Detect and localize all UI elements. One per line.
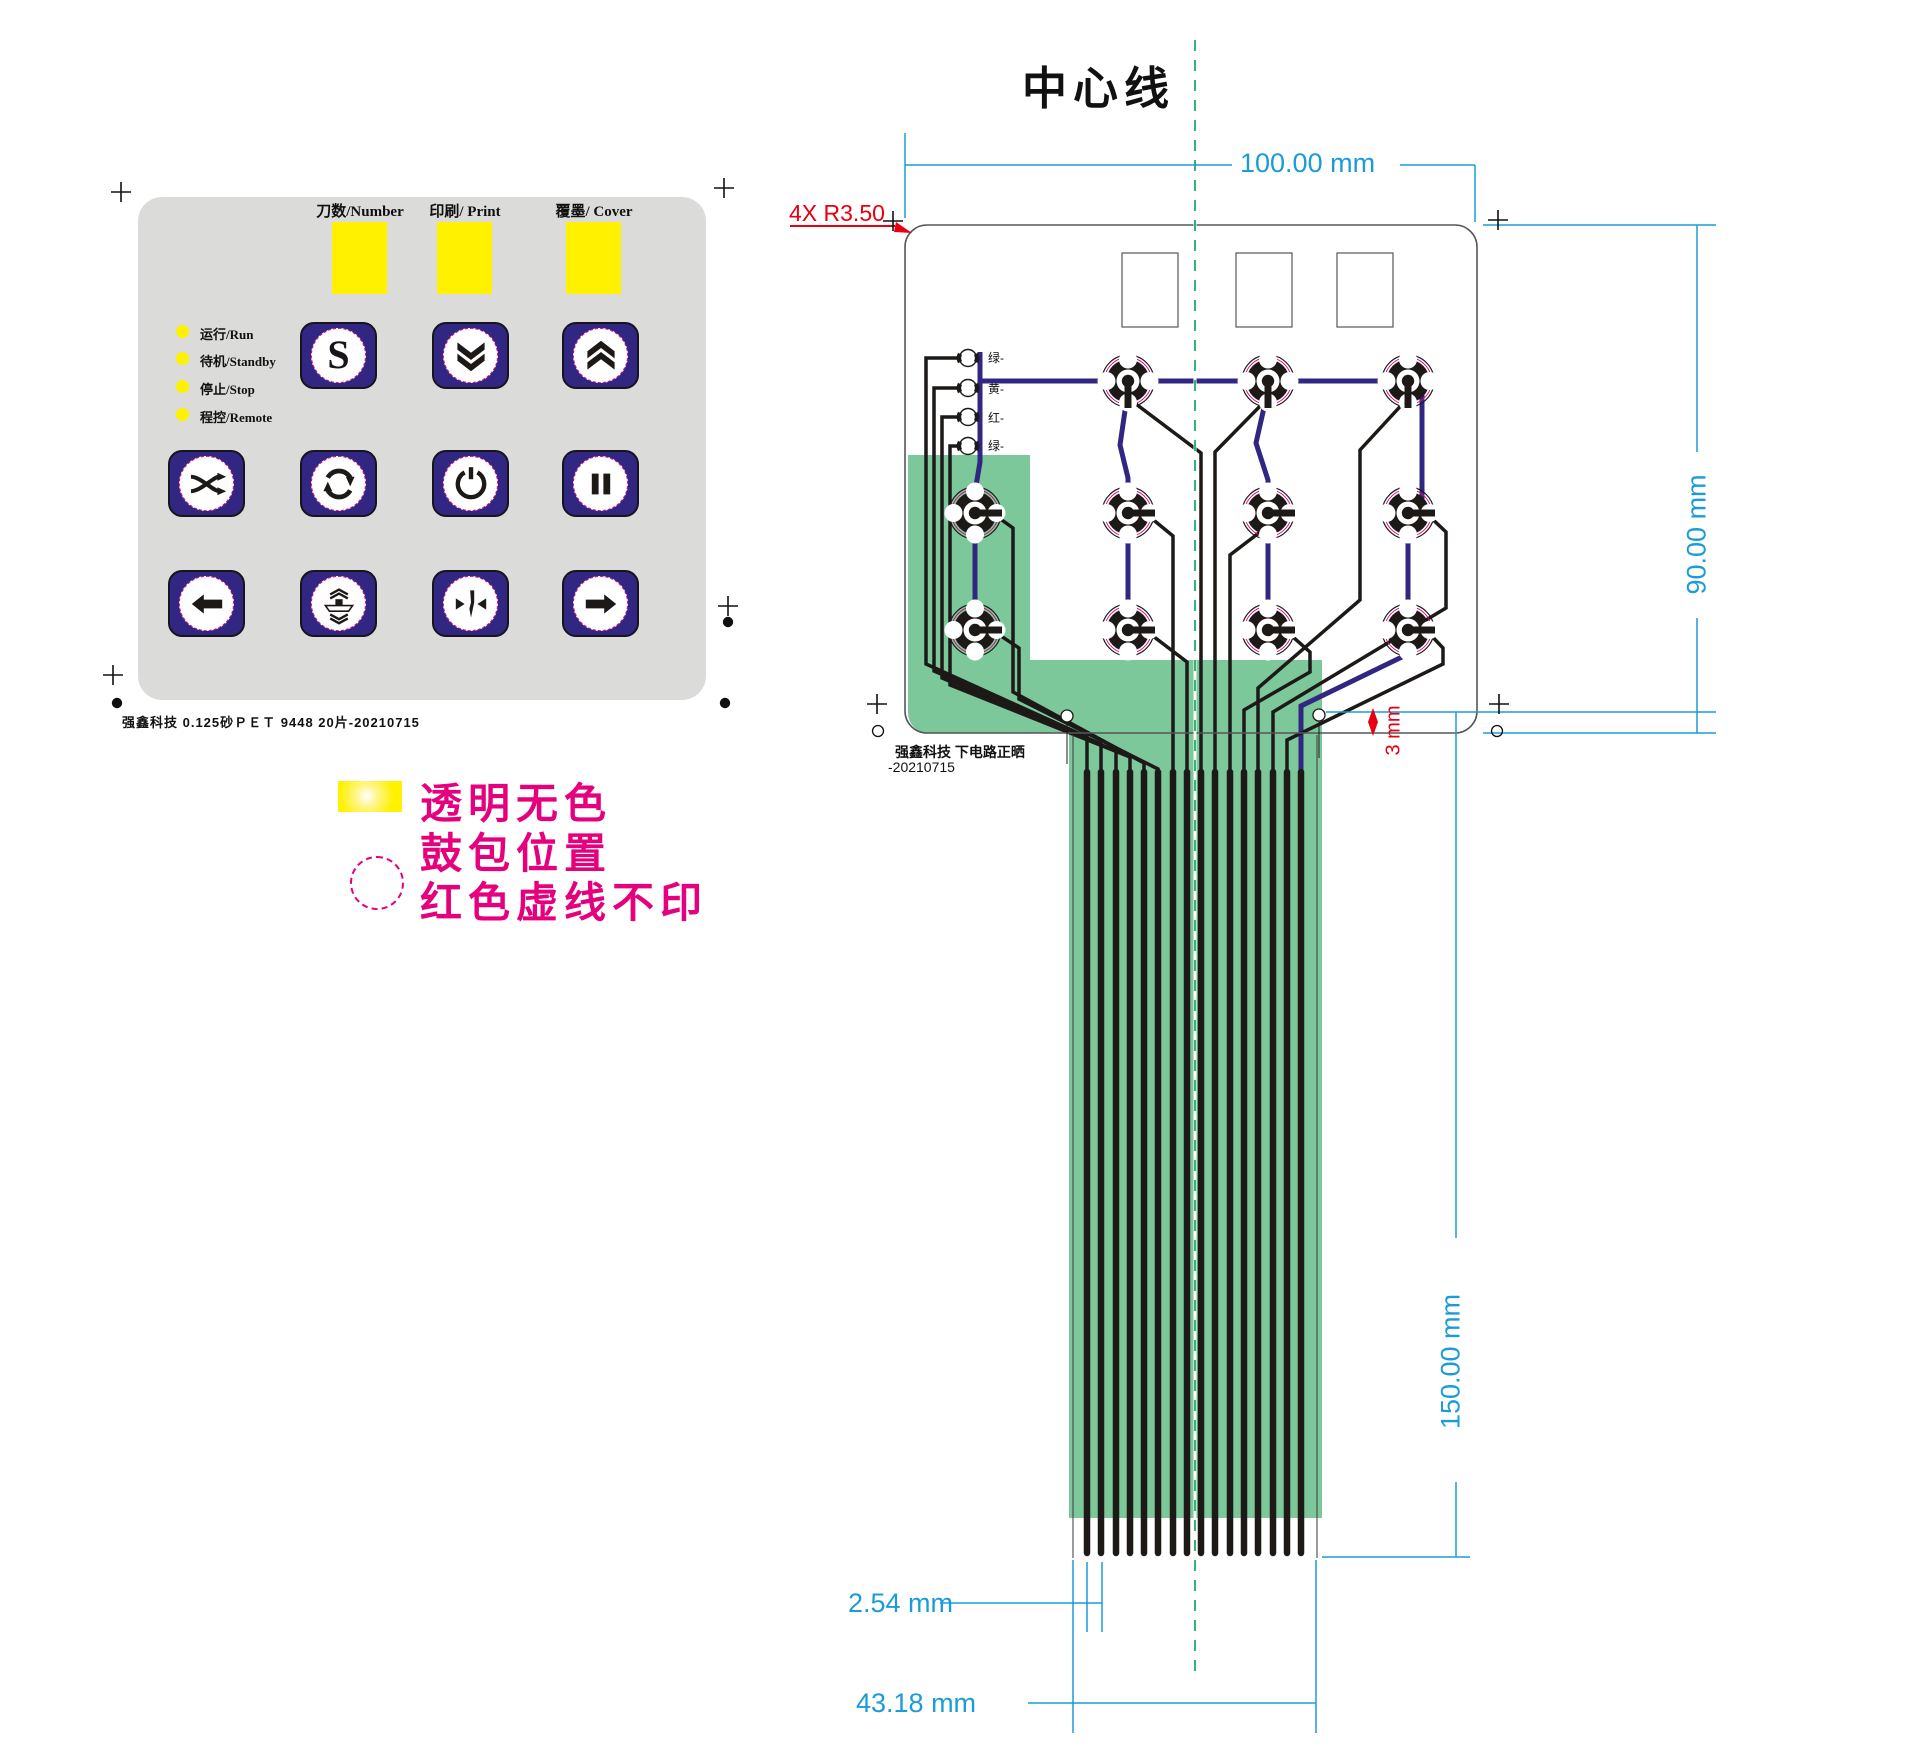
clear-window-print <box>437 222 492 294</box>
circuit-led-label-yellow: 黄- <box>988 380 1004 397</box>
center-line-title: 中心线 <box>1022 52 1175 117</box>
press-button[interactable] <box>300 570 377 637</box>
legend-line-2: 鼓包位置 <box>420 820 612 868</box>
circuit-footer-line2: -20210715 <box>888 759 955 775</box>
circuit-led-label-green1: 绿- <box>988 349 1004 366</box>
press-icon <box>315 580 363 628</box>
chevron-double-up-icon <box>577 332 625 380</box>
cut-button[interactable] <box>432 570 509 637</box>
remote-led-label: 程控/Remote <box>200 407 272 423</box>
legend-dashed-circle <box>350 856 404 910</box>
circuit-led-label-green2: 绿- <box>988 437 1004 454</box>
led-pad-green2 <box>959 438 977 455</box>
window-label-print: 印刷/ Print <box>400 200 530 218</box>
dim-height-label: 90.00 mm <box>1682 475 1713 595</box>
chevron-double-down-icon <box>447 332 495 380</box>
circuit-led-label-red: 红- <box>988 409 1004 426</box>
dim-width-label: 100.00 mm <box>1240 148 1375 179</box>
membrane-switch-drawing: 刀数/Number 印刷/ Print 覆墨/ Cover 运行/Run 待机/… <box>0 0 1920 1752</box>
window-label-cover: 覆墨/ Cover <box>529 200 659 218</box>
corner-radius-note: 4X R3.50 <box>789 200 885 227</box>
led-pad-red <box>959 409 977 426</box>
legend-line-3: 红色虚线不印 <box>420 869 708 917</box>
arrow-right-icon <box>577 580 625 628</box>
run-led <box>176 325 189 338</box>
led-pad-green1 <box>959 350 977 367</box>
stop-led <box>176 380 189 393</box>
pause-icon <box>577 460 625 508</box>
s-icon: S <box>324 332 354 380</box>
standby-led-label: 待机/Standby <box>200 351 276 367</box>
run-led-label: 运行/Run <box>200 324 253 340</box>
arrow-right-button[interactable] <box>562 570 639 637</box>
cut-icon <box>447 580 495 628</box>
s-button[interactable]: S <box>300 322 377 389</box>
stop-led-label: 停止/Stop <box>200 379 255 395</box>
dim-tail-width-label: 43.18 mm <box>856 1688 976 1719</box>
double-up-button[interactable] <box>562 322 639 389</box>
power-button[interactable] <box>432 450 509 517</box>
standby-led <box>176 352 189 365</box>
shuffle-icon <box>183 460 231 508</box>
arrow-left-button[interactable] <box>168 570 245 637</box>
cycle-button[interactable] <box>300 450 377 517</box>
pause-button[interactable] <box>562 450 639 517</box>
keypad-footer-note: 强鑫科技 0.125砂ＰＥＴ 9448 20片-20210715 <box>122 712 420 731</box>
remote-led <box>176 408 189 421</box>
double-down-button[interactable] <box>432 322 509 389</box>
cycle-icon <box>315 460 363 508</box>
led-pad-yellow <box>959 380 977 397</box>
dim-pitch-label: 2.54 mm <box>848 1588 953 1619</box>
clear-window-number <box>332 222 387 294</box>
dim-hole-label: 3 mm <box>1383 691 1406 771</box>
shuffle-button[interactable] <box>168 450 245 517</box>
legend-line-1: 透明无色 <box>420 770 612 818</box>
power-icon <box>447 460 495 508</box>
legend-yellow-swatch <box>338 781 402 812</box>
display-windows <box>1122 253 1393 327</box>
clear-window-cover <box>566 222 621 294</box>
dim-tail-length-label: 150.00 mm <box>1436 1292 1467 1432</box>
arrow-left-icon <box>183 580 231 628</box>
